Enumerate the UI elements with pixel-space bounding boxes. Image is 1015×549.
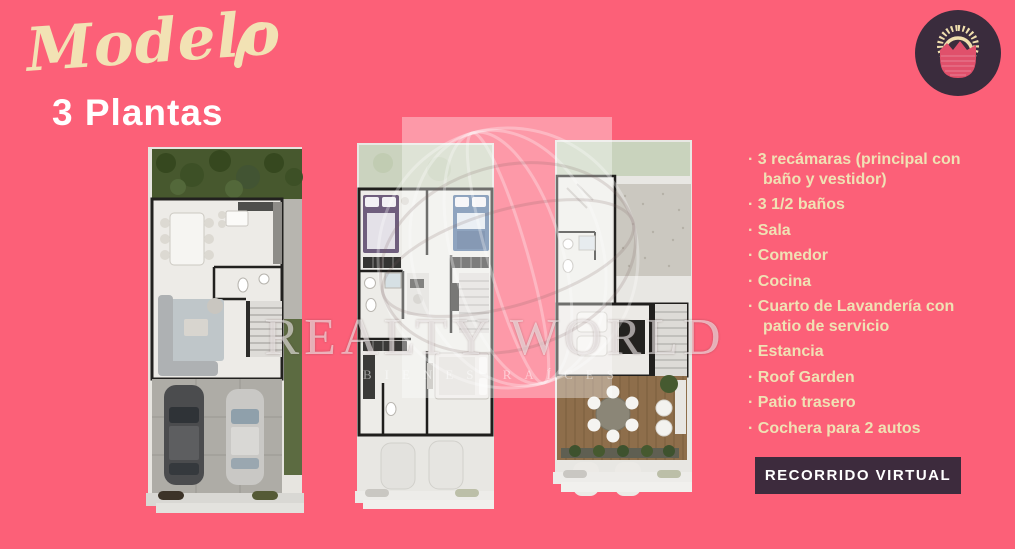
garden-strip xyxy=(152,149,303,199)
master-bed xyxy=(427,353,489,399)
feature-item: Cuarto de Lavandería con patio de servic… xyxy=(748,297,966,336)
features-list: 3 recámaras (principal con baño y vestid… xyxy=(748,150,966,444)
stairs xyxy=(246,301,282,357)
flyer-canvas: REALTY WORLD BIENES RAÍCES Modelo 3 Plan… xyxy=(0,0,1015,549)
feature-item: 3 recámaras (principal con baño y vestid… xyxy=(748,150,966,189)
feature-item: Cocina xyxy=(748,272,966,292)
bed-blue xyxy=(453,195,489,251)
car-suv-dark xyxy=(164,385,204,485)
page-subtitle: 3 Plantas xyxy=(52,92,223,134)
stairs-wall xyxy=(649,304,655,376)
ghost-garden xyxy=(557,142,690,176)
side-gravel xyxy=(282,199,302,319)
lounge xyxy=(557,304,687,376)
dining-table xyxy=(160,213,214,265)
virtual-tour-button[interactable]: RECORRIDO VIRTUAL xyxy=(755,457,961,494)
roof-garden-deck xyxy=(557,375,687,460)
side-garden xyxy=(284,319,302,475)
feature-item: Roof Garden xyxy=(748,368,966,388)
lounge-poufs xyxy=(656,375,686,436)
feature-item: 3 1/2 baños xyxy=(748,195,966,215)
feature-item: Sala xyxy=(748,221,966,241)
upper-room xyxy=(557,176,615,304)
floor-plan-bedrooms xyxy=(355,143,502,512)
feature-item: Comedor xyxy=(748,246,966,266)
floor-plan-roof xyxy=(553,140,700,512)
feature-item: Estancia xyxy=(748,342,966,362)
toilet xyxy=(386,403,396,416)
title-swash-icon xyxy=(232,20,266,70)
ghost-sidewalk xyxy=(355,489,494,509)
floor-plan-ground xyxy=(146,147,307,519)
sun-mountains-logo-icon xyxy=(913,8,1003,98)
sidewalk xyxy=(146,491,304,513)
feature-item: Patio trasero xyxy=(748,393,966,413)
roof-gravel xyxy=(615,184,691,276)
ghost-bush xyxy=(427,157,451,181)
ghost-bush xyxy=(373,153,393,173)
tv-console xyxy=(619,320,645,354)
car-sedan-silver xyxy=(226,389,264,485)
feature-item: Cochera para 2 autos xyxy=(748,419,966,439)
desk xyxy=(407,273,429,315)
